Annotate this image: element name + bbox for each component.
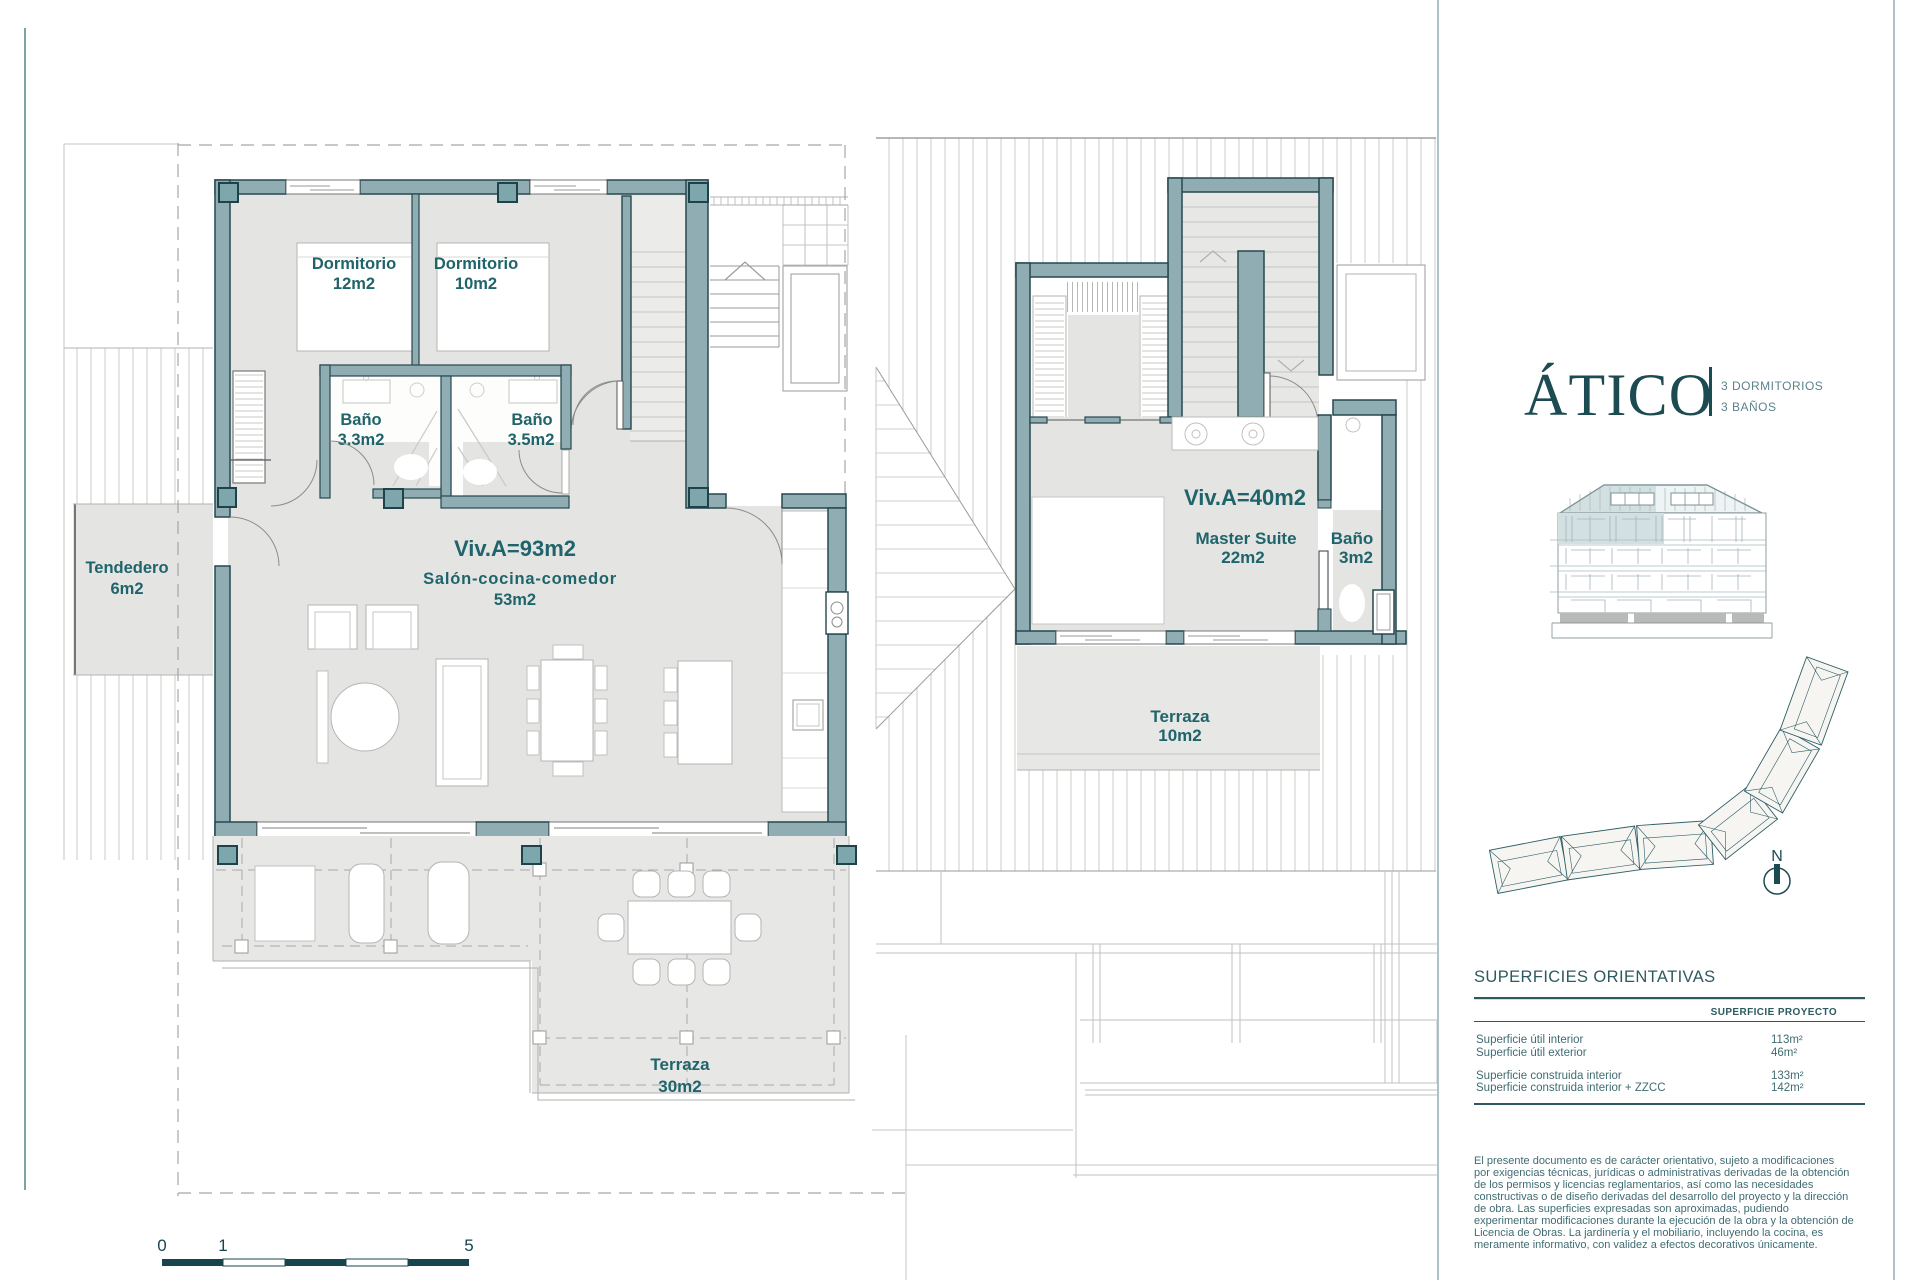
svg-text:Terraza: Terraza — [1150, 707, 1210, 726]
svg-text:46m²: 46m² — [1771, 1047, 1797, 1059]
svg-text:5: 5 — [464, 1236, 473, 1255]
svg-text:142m²: 142m² — [1771, 1082, 1804, 1094]
svg-text:constructivas o de diseño deri: constructivas o de diseño derivadas del … — [1474, 1191, 1848, 1203]
svg-text:10m2: 10m2 — [455, 275, 497, 293]
svg-text:3 BAÑOS: 3 BAÑOS — [1721, 400, 1777, 414]
svg-text:ÁTICO: ÁTICO — [1524, 362, 1713, 428]
svg-text:3.5m2: 3.5m2 — [508, 431, 555, 449]
svg-text:El presente documento es de ca: El presente documento es de carácter ori… — [1474, 1155, 1835, 1167]
svg-text:Superficie construida interior: Superficie construida interior + ZZCC — [1476, 1082, 1666, 1094]
svg-text:30m2: 30m2 — [658, 1077, 701, 1096]
svg-text:meramente informativo, con val: meramente informativo, con validez a efe… — [1474, 1239, 1818, 1251]
svg-text:por exigencias técnicas, juríd: por exigencias técnicas, jurídicas o adm… — [1474, 1167, 1849, 1179]
svg-text:22m2: 22m2 — [1221, 548, 1264, 567]
svg-text:3m2: 3m2 — [1339, 548, 1373, 567]
svg-text:Superficie construida interior: Superficie construida interior — [1476, 1070, 1622, 1082]
svg-text:133m²: 133m² — [1771, 1070, 1804, 1082]
svg-text:12m2: 12m2 — [333, 275, 375, 293]
svg-text:Dormitorio: Dormitorio — [312, 255, 396, 273]
svg-text:Tendedero: Tendedero — [85, 559, 168, 577]
svg-text:3 DORMITORIOS: 3 DORMITORIOS — [1721, 379, 1823, 393]
svg-text:Baño: Baño — [340, 411, 381, 429]
svg-text:113m²: 113m² — [1771, 1034, 1803, 1046]
svg-text:10m2: 10m2 — [1158, 726, 1201, 745]
svg-text:SUPERFICIE PROYECTO: SUPERFICIE PROYECTO — [1711, 1007, 1837, 1018]
svg-text:3.3m2: 3.3m2 — [338, 431, 385, 449]
svg-text:Master Suite: Master Suite — [1195, 529, 1296, 548]
svg-text:Dormitorio: Dormitorio — [434, 255, 518, 273]
svg-text:de obra. Las superficies: de obra. Las superficies expresadas son … — [1474, 1203, 1789, 1215]
svg-text:Licencia de Obras. La jardiner: Licencia de Obras. La jardinería y el mo… — [1474, 1227, 1824, 1239]
svg-text:SUPERFICIES ORIENTATIVAS: SUPERFICIES ORIENTATIVAS — [1474, 968, 1716, 986]
svg-text:Superficie útil exterior: Superficie útil exterior — [1476, 1047, 1587, 1059]
svg-text:6m2: 6m2 — [110, 580, 143, 598]
svg-text:0: 0 — [157, 1236, 166, 1255]
svg-text:1: 1 — [218, 1236, 227, 1255]
svg-text:Salón-cocina-comedor: Salón-cocina-comedor — [423, 570, 617, 588]
svg-text:experimentar modificaciones du: experimentar modificaciones durante la e… — [1474, 1215, 1854, 1227]
svg-text:53m2: 53m2 — [494, 591, 536, 609]
svg-text:N: N — [1771, 848, 1783, 865]
svg-text:Viv.A=40m2: Viv.A=40m2 — [1184, 485, 1306, 510]
svg-text:Superficie útil interior: Superficie útil interior — [1476, 1034, 1584, 1046]
svg-text:de los permisos y licencia: de los permisos y licencias reglamentari… — [1474, 1179, 1814, 1191]
svg-text:Baño: Baño — [1331, 529, 1374, 548]
svg-text:Terraza: Terraza — [650, 1055, 710, 1074]
svg-text:Viv.A=93m2: Viv.A=93m2 — [454, 536, 576, 561]
svg-text:Baño: Baño — [511, 411, 552, 429]
